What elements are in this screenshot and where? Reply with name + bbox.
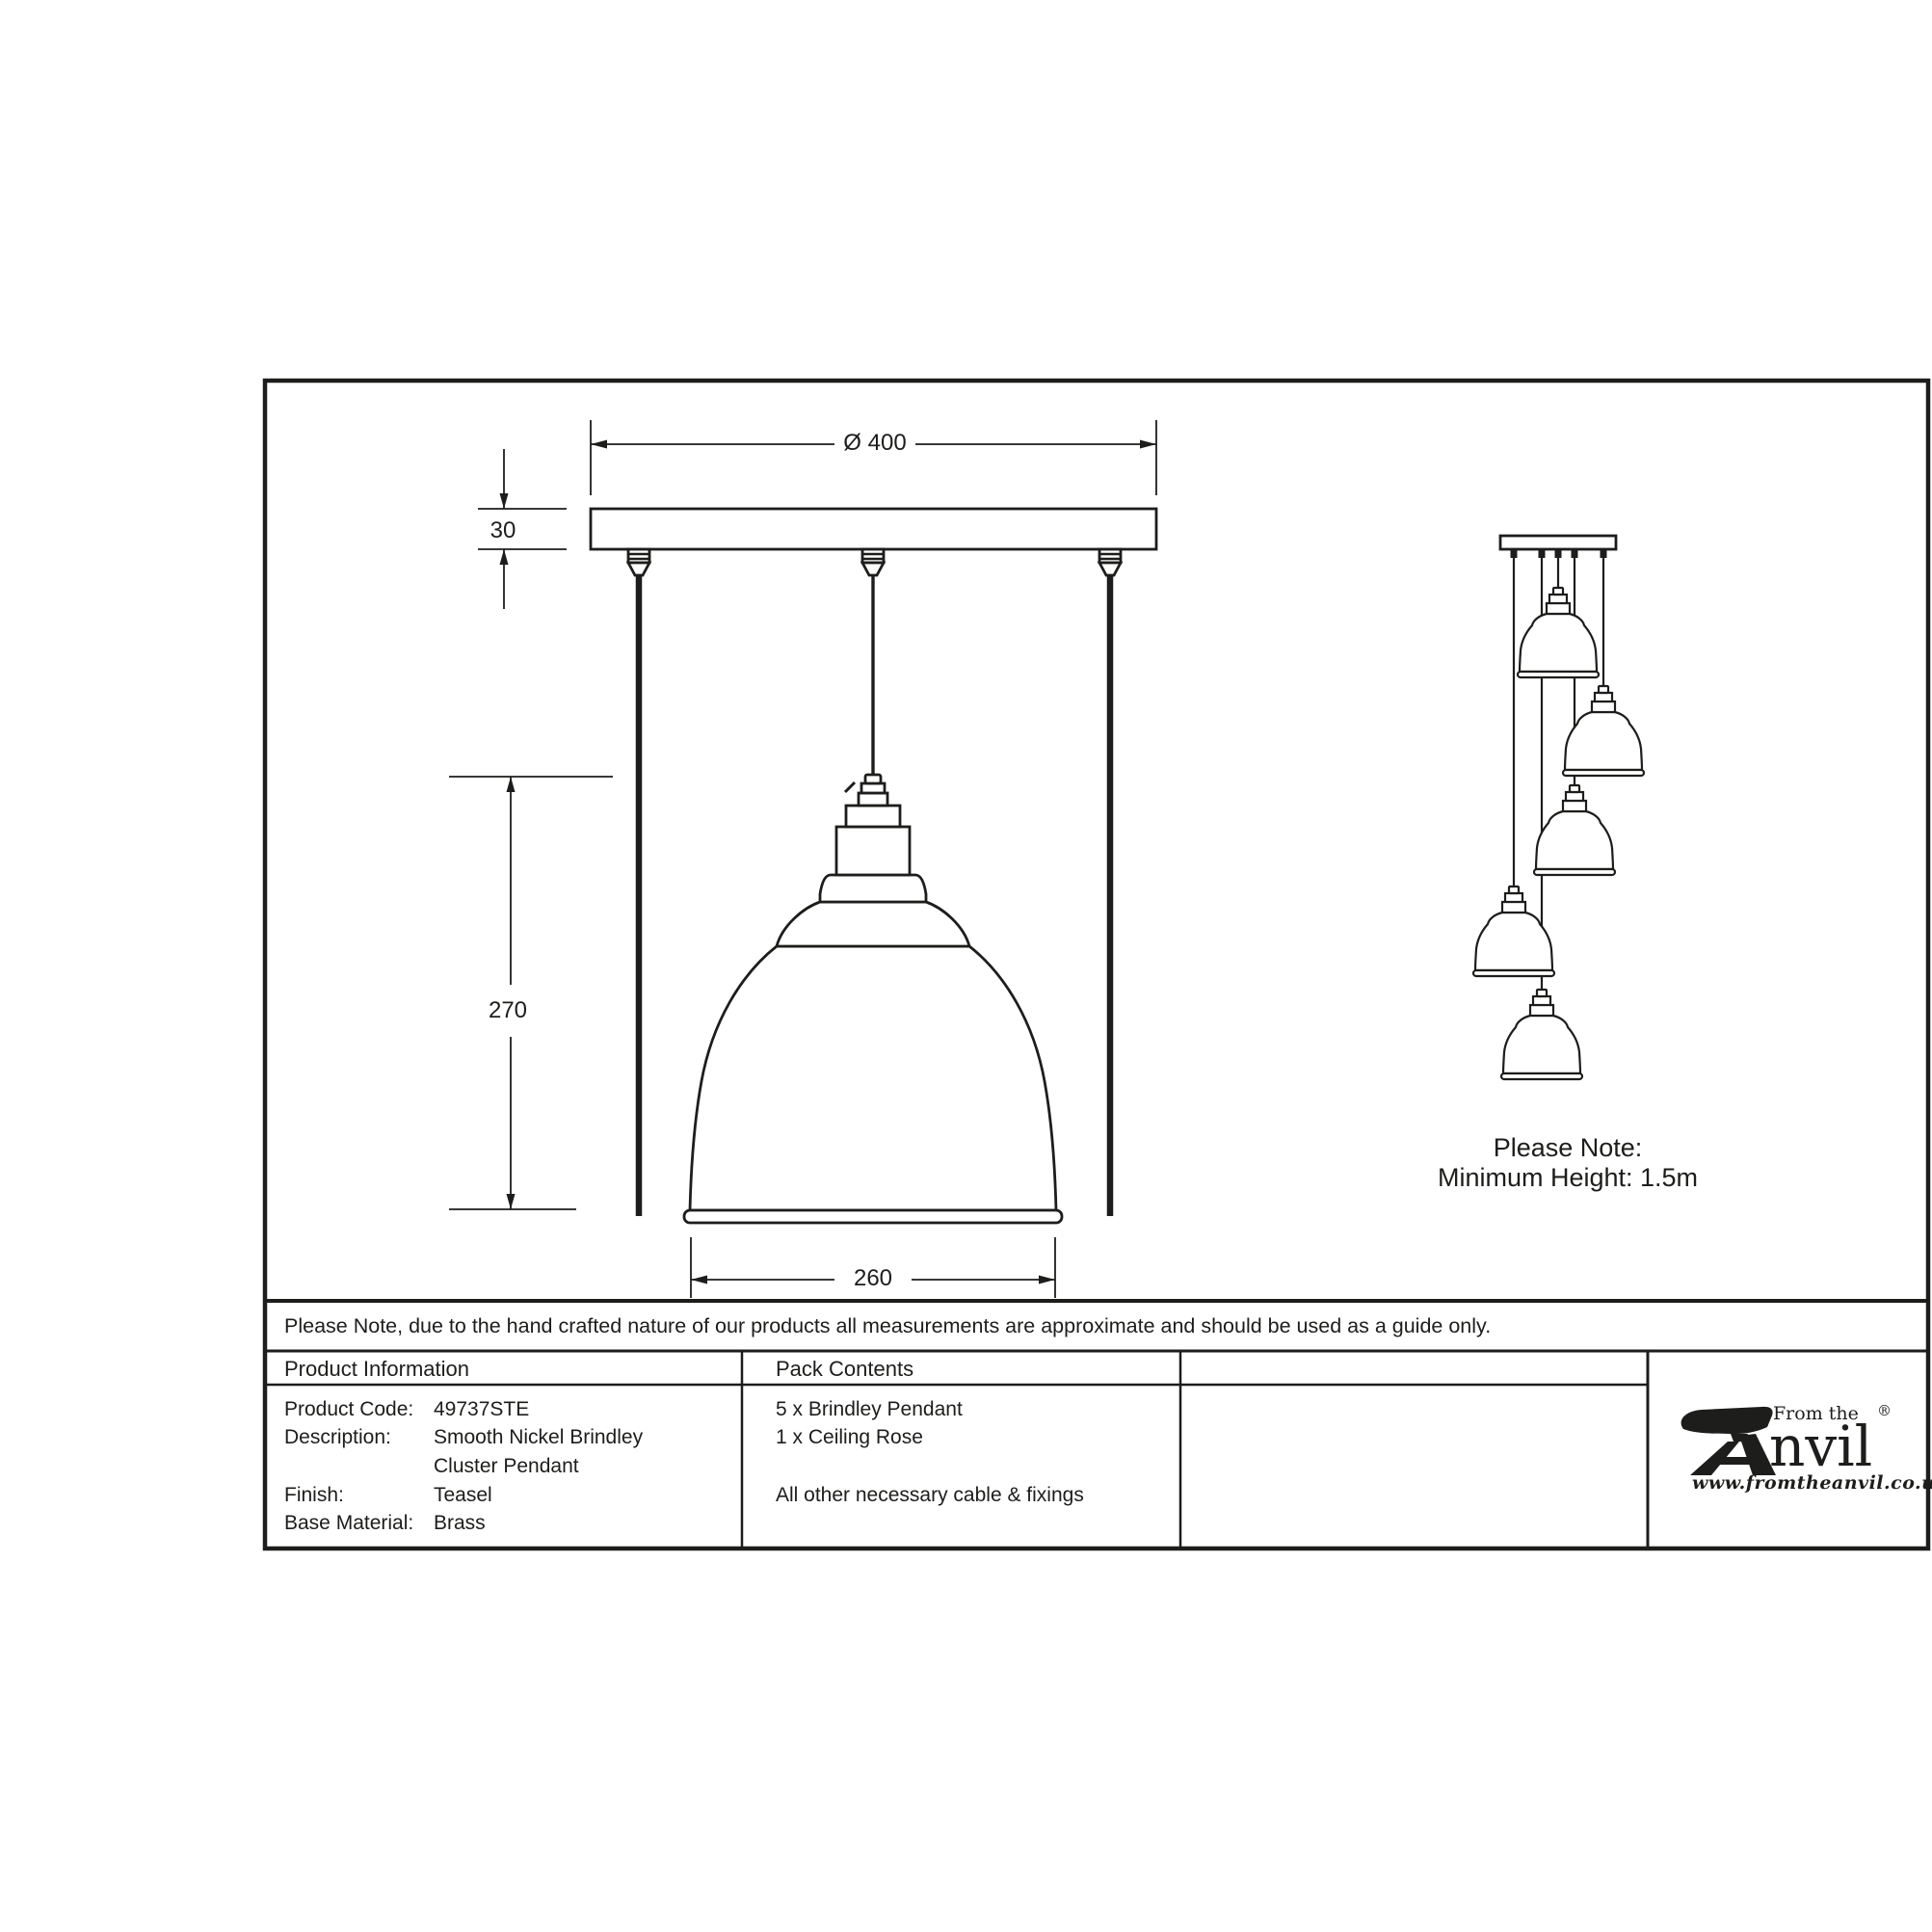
product-row-value: Cluster Pendant [434,1455,579,1478]
cord-grip [1099,549,1121,575]
dim-label-plate-height: 30 [490,517,516,544]
cluster-view [1473,536,1644,1079]
product-row-label: Product Code: [284,1398,413,1421]
cap-step [836,827,910,875]
cluster-ceiling-plate [1500,536,1616,549]
mini-pendant [1501,990,1582,1079]
logo-registered-mark: ® [1877,1402,1892,1419]
dim-label-pendant-height: 270 [489,997,527,1024]
holder-knob [865,775,881,783]
line-art [0,0,1932,1932]
product-row-value: Teasel [434,1484,492,1507]
header-product-information: Product Information [284,1357,469,1382]
lamp-holder [859,793,887,806]
cord-grip [862,549,884,575]
lamp-holder [861,783,885,793]
shade-dome [690,946,1056,1210]
cord-grip [628,549,649,575]
product-row-label: Description: [284,1426,391,1449]
dim-pendant-height [449,777,613,1209]
front-view [449,420,1156,1298]
brindley-pendant [684,775,1062,1223]
cap-step [846,806,900,827]
anvil-a-icon [1681,1407,1776,1475]
cluster-note-line2: Minimum Height: 1.5m [1438,1163,1698,1193]
pack-item: 5 x Brindley Pendant [776,1398,963,1421]
logo-name: nvil [1769,1418,1872,1474]
sheet-border [265,381,1928,1548]
shade-rim [684,1210,1062,1223]
cap-drum [820,875,926,902]
mini-pendant [1518,588,1599,677]
header-pack-contents: Pack Contents [776,1357,913,1382]
product-row-label: Finish: [284,1484,344,1507]
footer-note: Please Note, due to the hand crafted nat… [284,1314,1491,1338]
cluster-note: Please Note: Minimum Height: 1.5m [1438,1133,1698,1193]
product-row-value: Brass [434,1512,486,1535]
pack-item: All other necessary cable & fixings [776,1484,1084,1507]
dim-label-shade-width: 260 [854,1265,892,1292]
product-row-value: 49737STE [434,1398,529,1421]
product-row-label: Base Material: [284,1512,413,1535]
shade-shoulder [777,902,969,946]
dim-label-plate-diameter: Ø 400 [843,430,906,457]
pack-item: 1 x Ceiling Rose [776,1426,923,1449]
product-row-value: Smooth Nickel Brindley [434,1426,643,1449]
ceiling-plate [591,509,1156,549]
logo-url: www.fromtheanvil.co.uk [1692,1472,1932,1494]
mini-pendant [1534,785,1615,875]
drawing-sheet: Ø 400 30 270 260 Please Note: Minimum He… [0,0,1932,1932]
cluster-note-line1: Please Note: [1438,1133,1698,1163]
holder-screw [845,782,855,792]
